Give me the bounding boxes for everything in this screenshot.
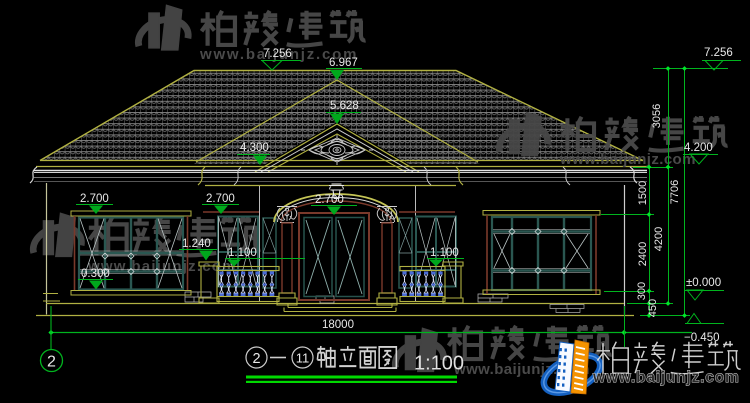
svg-text:6.967: 6.967 [329,57,358,69]
svg-text:2.700: 2.700 [80,193,109,205]
svg-text:18000: 18000 [322,319,354,331]
svg-text:±0.000: ±0.000 [686,277,721,289]
svg-text:0.300: 0.300 [81,268,110,280]
svg-text:7706: 7706 [669,180,681,204]
svg-text:450: 450 [647,299,659,317]
svg-text:www.baijunjz.com: www.baijunjz.com [592,369,740,386]
svg-text:7.256: 7.256 [704,47,733,59]
svg-text:300: 300 [636,282,648,300]
svg-text:1.100: 1.100 [228,247,257,259]
svg-text:2: 2 [252,351,260,367]
svg-text:4.300: 4.300 [240,142,269,154]
svg-text:7.256: 7.256 [263,48,292,60]
svg-text:2: 2 [47,354,56,371]
svg-text:1500: 1500 [637,181,649,205]
svg-text:4.200: 4.200 [684,142,713,154]
svg-text:1:100: 1:100 [414,353,464,375]
svg-text:2.700: 2.700 [315,194,344,206]
svg-text:1.240: 1.240 [182,238,211,250]
svg-text:1.100: 1.100 [430,247,459,259]
svg-text:www.baijunjz.com: www.baijunjz.com [559,151,696,168]
svg-text:11: 11 [296,351,310,366]
svg-text:5.628: 5.628 [330,100,359,112]
svg-text:4200: 4200 [653,227,665,251]
svg-text:2.700: 2.700 [206,193,235,205]
svg-text:3056: 3056 [651,104,663,128]
svg-text:2400: 2400 [637,242,649,266]
